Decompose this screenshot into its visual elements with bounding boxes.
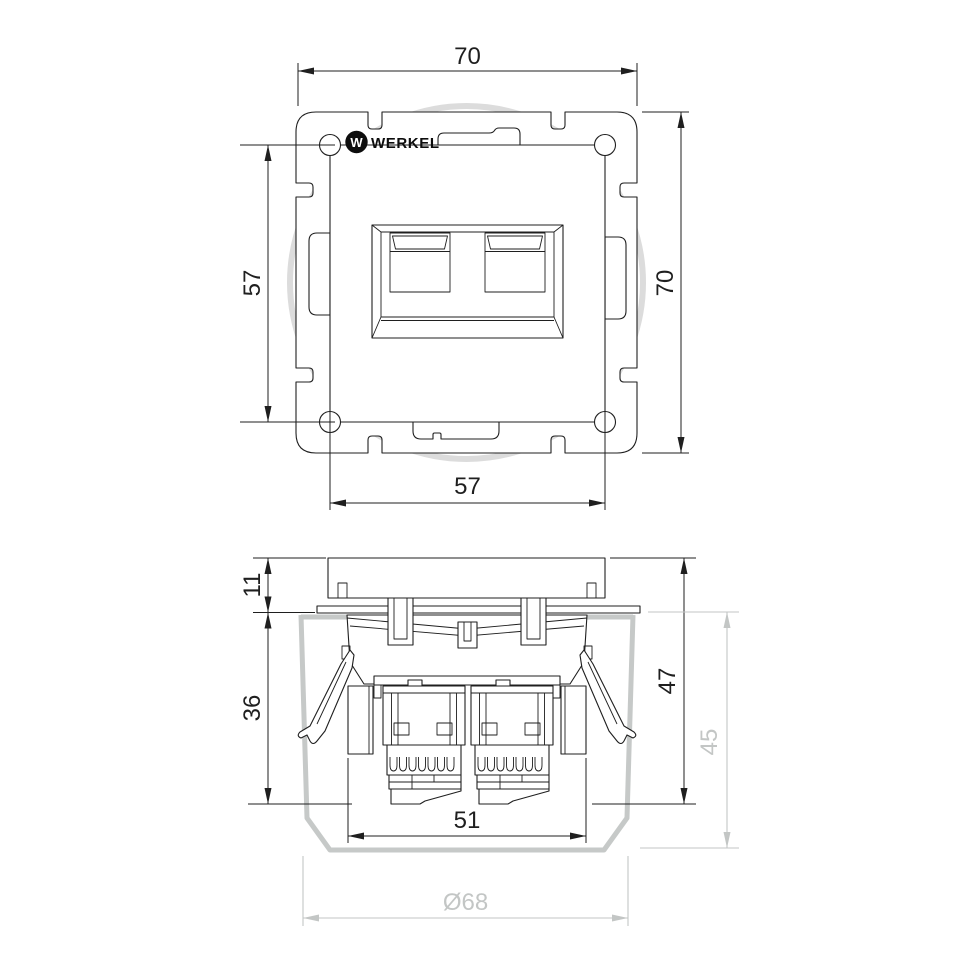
arrowhead-bottom — [678, 437, 685, 453]
arrowhead-right — [589, 500, 605, 507]
arrowhead-bottom — [265, 788, 272, 804]
mounting-post-right — [521, 598, 546, 645]
arrowhead-right — [621, 68, 637, 75]
dim-label: Ø68 — [443, 889, 488, 916]
arrowhead-left — [303, 915, 319, 922]
brand-logo: W WERKEL — [345, 131, 439, 153]
module-foot — [391, 789, 461, 804]
bracket-outer — [458, 622, 477, 648]
dim-overall-height: 70 — [642, 112, 689, 453]
arrowhead-left — [330, 500, 346, 507]
extension-lines — [640, 612, 739, 848]
arrowhead-top — [265, 558, 272, 574]
arrowhead-bottom — [265, 406, 272, 422]
faceplate-side — [328, 558, 605, 598]
keystone-module-left — [383, 680, 465, 804]
brand-logo-text: WERKEL — [371, 135, 440, 152]
dim-label: 36 — [239, 695, 266, 722]
dim-label: 70 — [454, 43, 481, 70]
flange-plate — [317, 606, 640, 613]
side-view: 11 36 47 45 — [239, 558, 739, 926]
dim-label: 57 — [239, 270, 266, 297]
post-outer — [388, 598, 413, 645]
dim-label: 47 — [654, 668, 681, 695]
fixing-claw-left — [298, 646, 354, 744]
arrowhead-right — [570, 833, 586, 840]
arrowhead-top — [678, 112, 685, 128]
technical-drawing: W WERKEL 70 — [0, 0, 970, 970]
rj45-recess — [372, 225, 563, 338]
center-bracket — [458, 622, 477, 648]
brand-logo-mark: W — [350, 135, 363, 150]
arrowhead-top — [265, 145, 272, 161]
arrowhead-bottom — [681, 788, 688, 804]
ledge-hook-left — [374, 685, 381, 698]
recess-outer — [372, 225, 563, 338]
arrowhead-bottom — [724, 832, 731, 848]
arrowhead-top — [265, 613, 272, 629]
dim-label: 51 — [454, 807, 481, 834]
mechanism-body — [298, 598, 636, 804]
latch-tab-right — [605, 237, 626, 319]
dim-overall-width: 70 — [298, 43, 637, 106]
arrowhead-left — [348, 833, 364, 840]
module-block — [383, 686, 465, 745]
ledge-bar — [374, 676, 560, 685]
dim-box-diameter: Ø68 — [303, 856, 628, 926]
arrowhead-right — [612, 915, 628, 922]
dim-label: 57 — [454, 473, 481, 500]
side-housing-right — [561, 686, 586, 754]
mounting-post-left — [388, 598, 413, 645]
dim-label: 11 — [239, 573, 266, 598]
dim-label: 45 — [696, 729, 723, 756]
dim-label: 70 — [652, 270, 679, 297]
side-housing-left — [348, 686, 373, 754]
faceplate-body — [328, 558, 605, 598]
dim-faceplate-thickness: 11 — [239, 558, 326, 613]
arrowhead-top — [681, 558, 688, 574]
dim-mech-width: 51 — [348, 758, 586, 843]
latch-tab-bottom — [413, 422, 499, 439]
front-view: W WERKEL 70 — [239, 43, 689, 510]
keystone-module-right — [471, 680, 553, 804]
arrowhead-left — [298, 68, 314, 75]
screw-hole-top-right — [595, 135, 616, 156]
dim-total-depth: 47 — [592, 558, 696, 804]
claw-blade — [298, 650, 354, 744]
arrowhead-top — [724, 612, 731, 628]
latch-tab-left — [309, 233, 330, 315]
arrowhead-bottom — [265, 597, 272, 613]
fixing-claw-right — [580, 646, 636, 744]
ledge-hook-right — [553, 685, 560, 698]
dim-box-depth: 45 — [640, 612, 739, 848]
drawing-page: W WERKEL 70 — [0, 0, 970, 970]
